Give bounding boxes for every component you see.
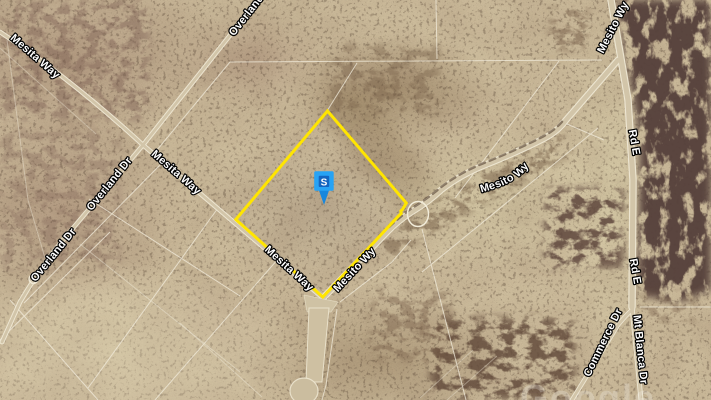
svg-text:S: S	[321, 178, 328, 189]
svg-text:Google: Google	[520, 377, 656, 400]
